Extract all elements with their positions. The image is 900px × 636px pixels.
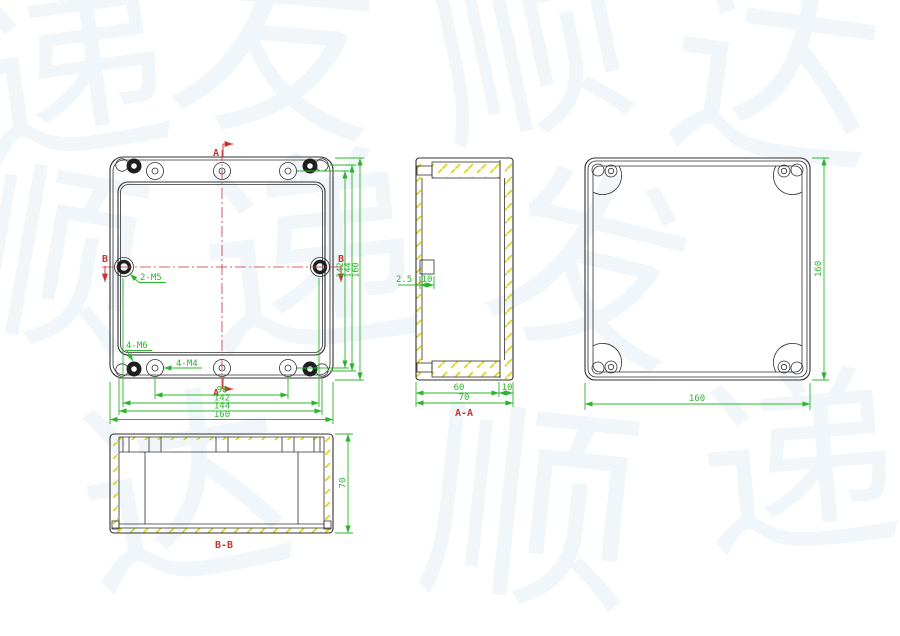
aa-boss-dimensions: 2.5 10	[396, 275, 434, 289]
hatch-bottom-boss	[432, 361, 500, 377]
dim-2-5: 2.5	[396, 275, 412, 285]
bb-cavity-walls	[145, 452, 298, 524]
dim-v-160: 160	[352, 262, 362, 277]
thread-label: 2-M5	[140, 273, 162, 283]
aa-outer-outline	[416, 158, 513, 380]
thread-label: 4-M6	[126, 341, 148, 351]
section-label-a-a: A-A	[455, 408, 473, 419]
back-corner-scallops	[593, 166, 802, 372]
back-outer-outline	[585, 158, 810, 380]
dim-10-boss: 10	[422, 275, 433, 285]
front-view: A A B B 2-M5	[102, 144, 364, 424]
dim-width-160: 160	[689, 394, 705, 404]
dim-60: 60	[454, 383, 465, 393]
dim-height-160: 160	[814, 261, 824, 277]
hatch-left-wall	[110, 434, 118, 533]
front-bottom-dimensions: 96 142 144 160	[110, 278, 333, 424]
dim-160: 160	[214, 410, 230, 420]
aa-bottom-dimensions: 60 10 70	[416, 382, 513, 407]
section-marker-b-left: B	[102, 254, 108, 282]
dim-10-lid: 10	[502, 383, 513, 393]
back-corner-holes	[592, 164, 803, 374]
dim-70: 70	[339, 478, 349, 489]
back-outer-outline-2	[588, 161, 807, 377]
hatch-top-boss	[432, 162, 500, 178]
bb-outer-outline	[110, 434, 333, 533]
technical-drawing: A A B B 2-M5	[0, 0, 900, 636]
callout-4-m4: 4-M4	[164, 359, 202, 369]
callout-4-m6: 4-M6	[125, 341, 152, 361]
back-view: 160 160	[585, 158, 829, 410]
bb-wall-inner-lines	[119, 437, 324, 528]
section-b-b-view: 70 B-B	[110, 434, 353, 551]
section-letter-b: B	[102, 254, 108, 265]
front-right-dimensions: 142 144 160	[297, 158, 364, 380]
hatch-right-wall	[325, 434, 333, 533]
section-label-b-b: B-B	[215, 540, 233, 551]
bb-dimension: 70	[335, 434, 353, 533]
hatch-left-wall	[417, 159, 423, 379]
drawing-canvas: 递 发 顺 达 顺 递 发 达 顺 递	[0, 0, 900, 636]
back-inner-panel	[593, 166, 802, 372]
thread-label: 4-M4	[176, 359, 198, 369]
section-a-a-view: 2.5 10 60 10 70 A-A	[396, 158, 513, 419]
callout-2-m5: 2-M5	[130, 273, 166, 283]
lid-screw-bosses	[147, 163, 297, 377]
front-opening-outline-2	[121, 185, 323, 353]
section-letter-a: A	[213, 148, 219, 159]
dim-70: 70	[459, 393, 470, 403]
hatch-lid	[505, 159, 513, 379]
front-opening-outline	[118, 182, 325, 355]
